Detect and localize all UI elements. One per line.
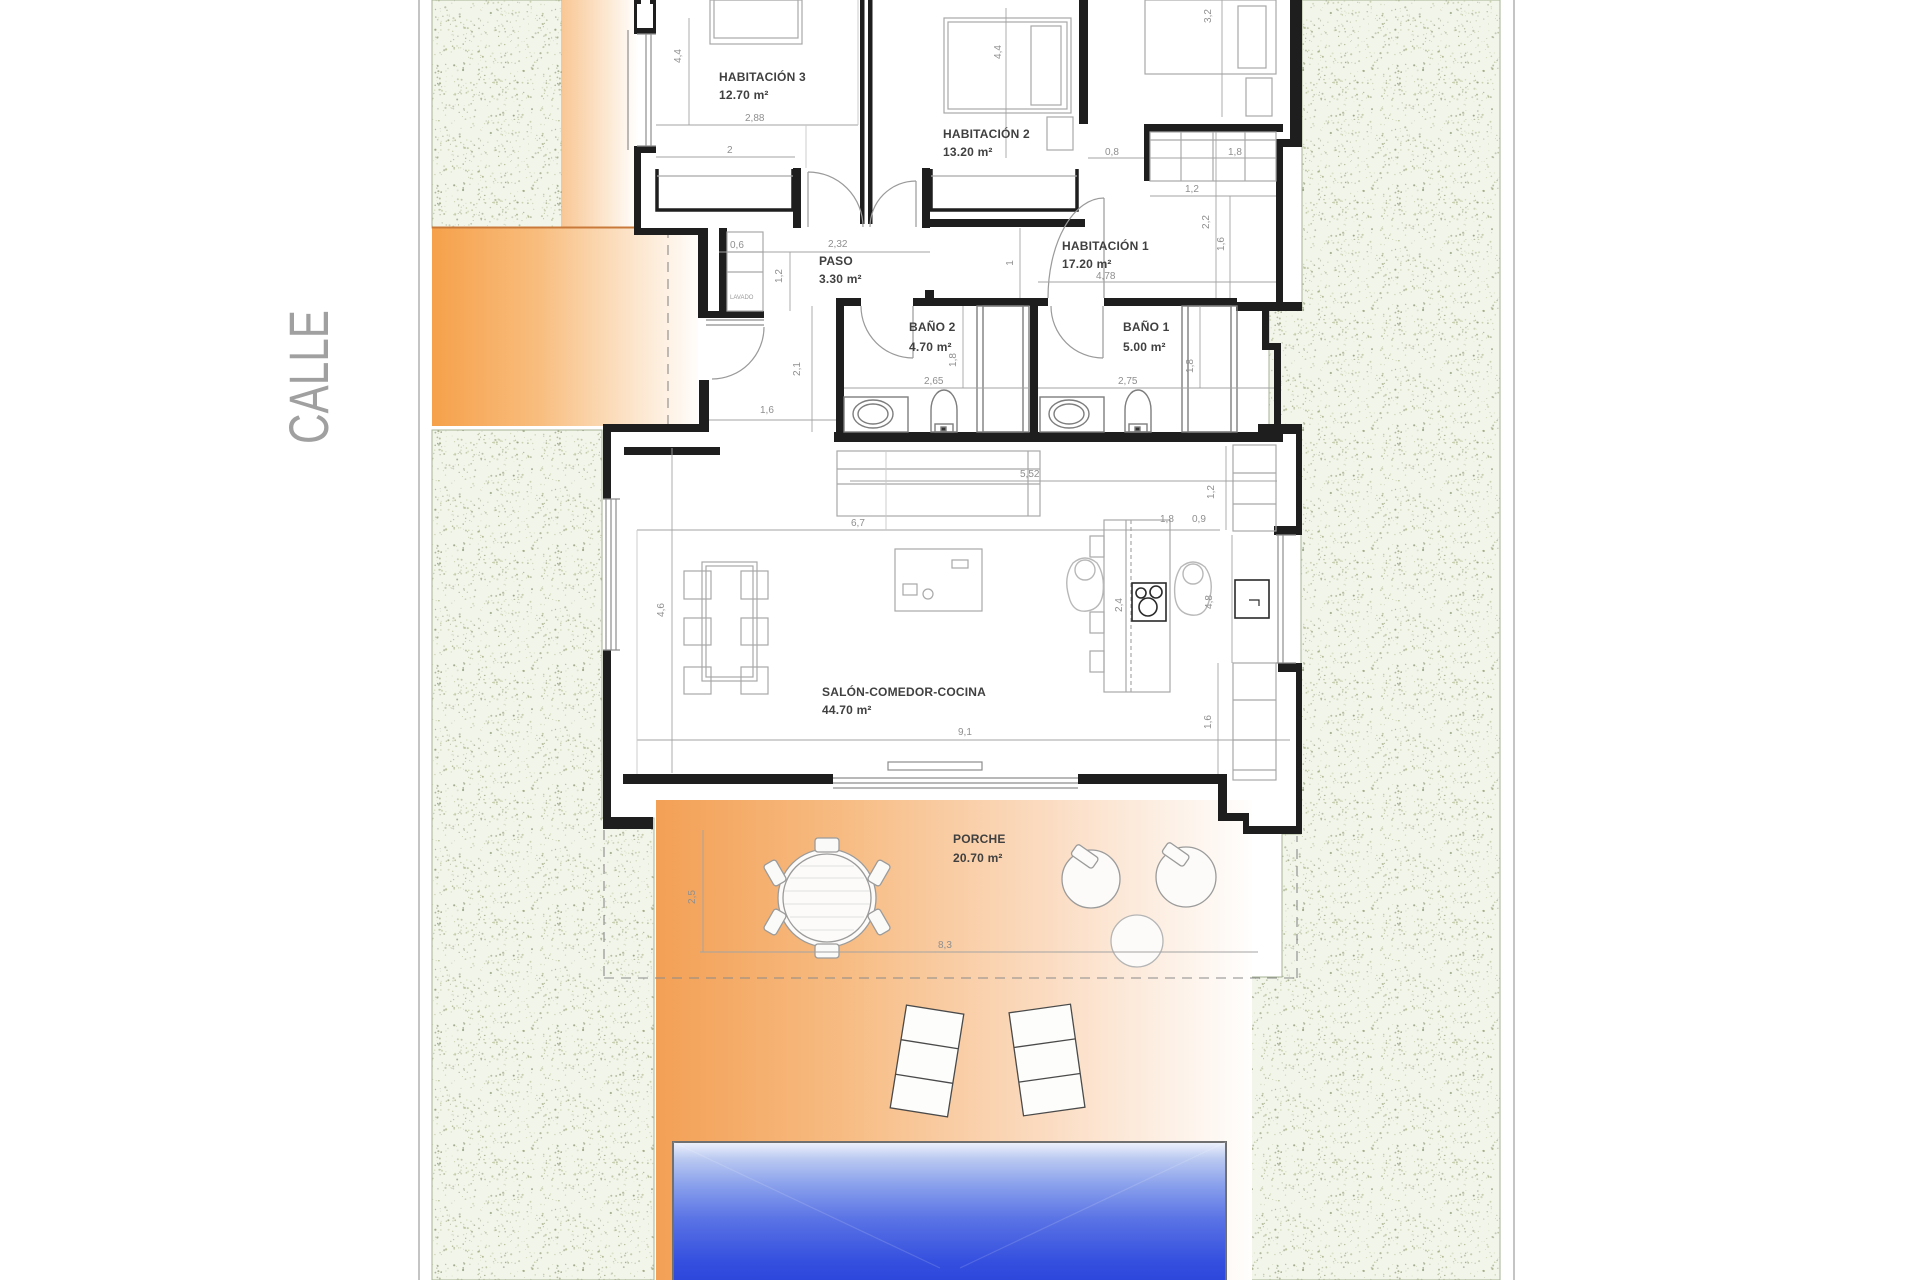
svg-text:1: 1 — [1005, 260, 1016, 266]
svg-text:1,6: 1,6 — [1216, 237, 1227, 251]
svg-text:5,52: 5,52 — [1020, 469, 1040, 480]
svg-text:2,2: 2,2 — [1201, 215, 1212, 229]
svg-text:PASO: PASO — [819, 254, 853, 268]
svg-text:SALÓN-COMEDOR-COCINA: SALÓN-COMEDOR-COCINA — [822, 684, 986, 699]
svg-text:17.20 m²: 17.20 m² — [1062, 257, 1112, 271]
svg-text:0,9: 0,9 — [1192, 514, 1206, 525]
svg-text:44.70 m²: 44.70 m² — [822, 703, 872, 717]
svg-text:BAÑO 1: BAÑO 1 — [1123, 319, 1170, 334]
svg-text:2,65: 2,65 — [924, 376, 944, 387]
svg-text:1,8: 1,8 — [1228, 147, 1242, 158]
svg-text:3,2: 3,2 — [1203, 9, 1214, 23]
svg-text:1,2: 1,2 — [1206, 485, 1217, 499]
svg-text:1,8: 1,8 — [1185, 359, 1196, 373]
svg-text:0,8: 0,8 — [1105, 147, 1119, 158]
svg-text:1,6: 1,6 — [760, 405, 774, 416]
svg-text:4,8: 4,8 — [1204, 595, 1215, 609]
svg-text:4,4: 4,4 — [993, 45, 1004, 59]
svg-text:2: 2 — [727, 145, 733, 156]
svg-text:LAVADO: LAVADO — [730, 295, 754, 301]
svg-text:0,6: 0,6 — [730, 240, 744, 251]
svg-text:9,1: 9,1 — [958, 727, 972, 738]
svg-text:2,4: 2,4 — [1114, 598, 1125, 612]
svg-text:HABITACIÓN 2: HABITACIÓN 2 — [943, 126, 1030, 141]
svg-text:1,2: 1,2 — [774, 269, 785, 283]
svg-text:4,78: 4,78 — [1096, 271, 1116, 282]
svg-text:1,6: 1,6 — [1203, 715, 1214, 729]
svg-text:6,7: 6,7 — [851, 518, 865, 529]
svg-text:13.20 m²: 13.20 m² — [943, 145, 993, 159]
svg-text:20.70 m²: 20.70 m² — [953, 851, 1003, 865]
svg-text:5.00 m²: 5.00 m² — [1123, 340, 1166, 354]
svg-text:1,2: 1,2 — [1185, 184, 1199, 195]
svg-text:2,75: 2,75 — [1118, 376, 1138, 387]
svg-text:CALLE: CALLE — [277, 310, 340, 444]
svg-text:12.70 m²: 12.70 m² — [719, 88, 769, 102]
svg-text:3.30 m²: 3.30 m² — [819, 272, 862, 286]
svg-text:2,32: 2,32 — [828, 239, 848, 250]
svg-text:HABITACIÓN 3: HABITACIÓN 3 — [719, 69, 806, 84]
svg-text:8,3: 8,3 — [938, 940, 952, 951]
svg-text:4.70 m²: 4.70 m² — [909, 340, 952, 354]
svg-text:1,8: 1,8 — [948, 353, 959, 367]
svg-text:HABITACIÓN 1: HABITACIÓN 1 — [1062, 238, 1149, 253]
svg-text:2,5: 2,5 — [687, 890, 698, 904]
svg-text:BAÑO 2: BAÑO 2 — [909, 319, 956, 334]
svg-text:1,8: 1,8 — [1160, 514, 1174, 525]
svg-text:4,6: 4,6 — [656, 603, 667, 617]
svg-text:PORCHE: PORCHE — [953, 832, 1006, 846]
svg-text:2,88: 2,88 — [745, 113, 765, 124]
svg-text:4,4: 4,4 — [673, 49, 684, 63]
svg-text:2,1: 2,1 — [792, 362, 803, 376]
